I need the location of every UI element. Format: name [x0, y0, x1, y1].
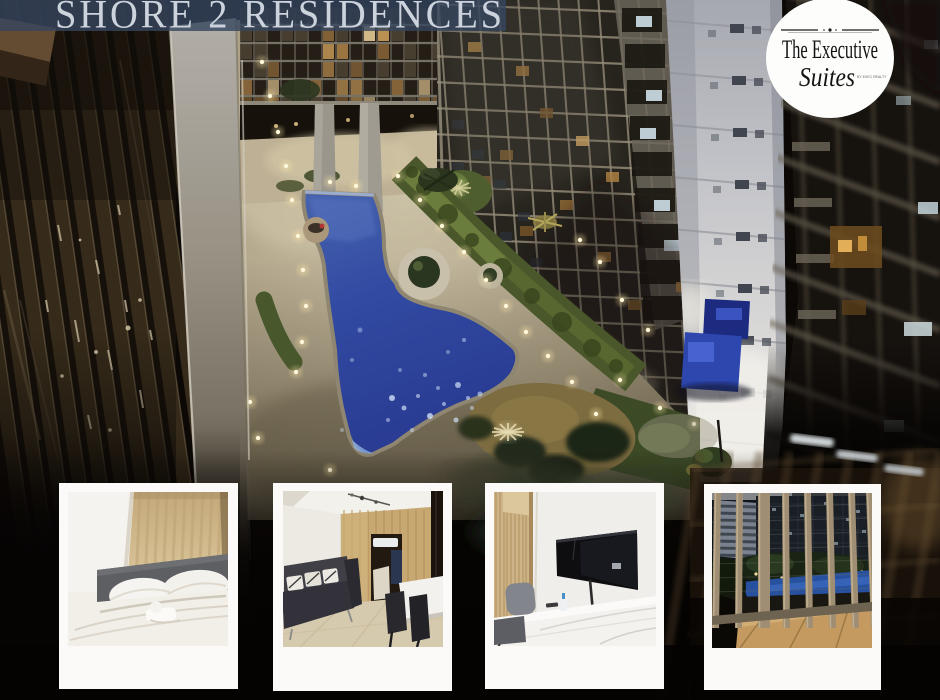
svg-text:BY EXEC REALTY: BY EXEC REALTY	[857, 75, 887, 79]
svg-text:SHORE 2 RESIDENCES: SHORE 2 RESIDENCES	[55, 0, 505, 37]
svg-text:The Executive: The Executive	[782, 35, 878, 64]
svg-text:Suites: Suites	[799, 62, 855, 92]
